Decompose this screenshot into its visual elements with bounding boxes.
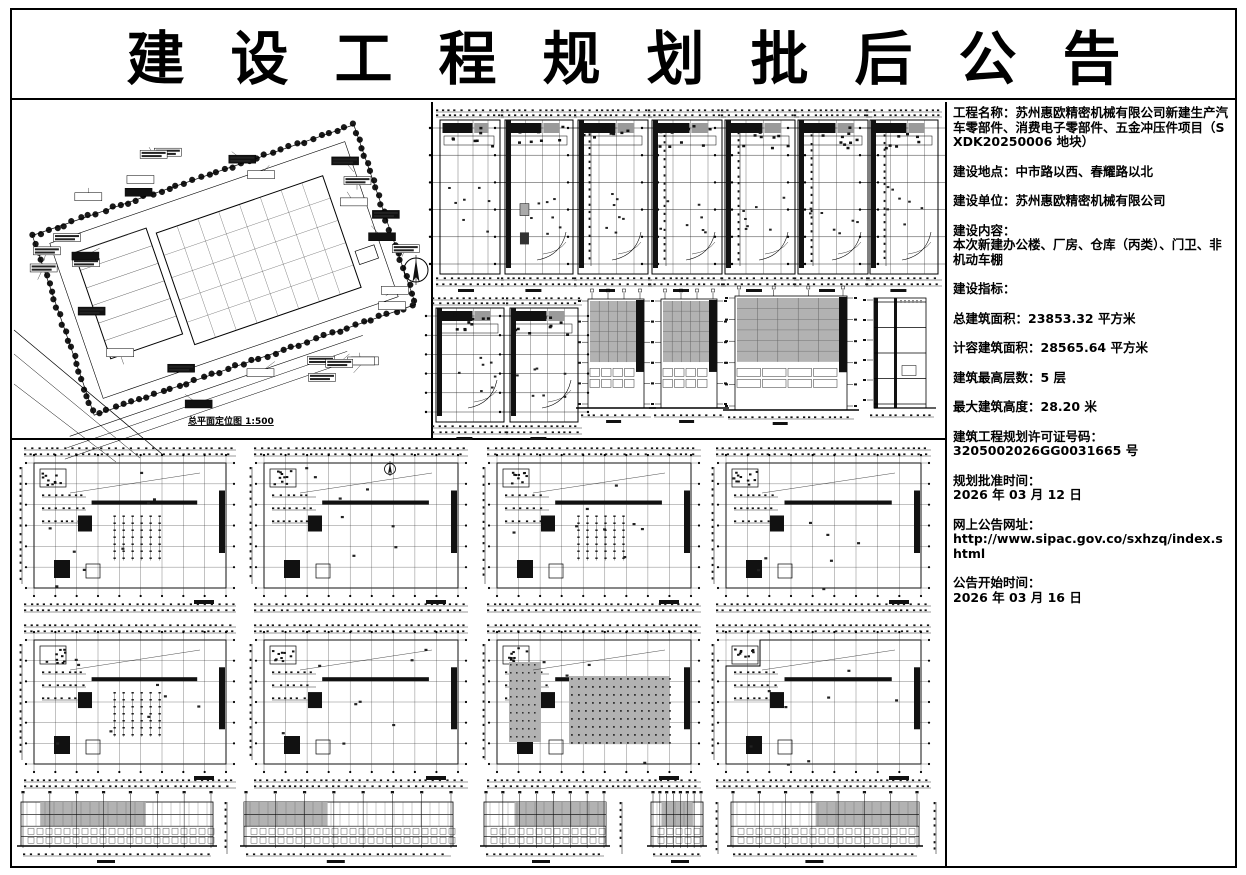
wide-elevation <box>480 791 622 863</box>
title-band: 建设工程规划批后公告 <box>12 10 1235 100</box>
small-elevation <box>649 289 729 423</box>
info-line: 本次新建办公楼、厂房、仓库（丙类）、门卫、非机动车棚 <box>953 238 1230 267</box>
info-paragraph: 规划批准时间：2026 年 03 月 12 日 <box>953 474 1230 503</box>
drawings-area: 总平面定位图 1:500 <box>12 102 945 866</box>
info-line: 建设指标： <box>953 282 1230 297</box>
info-paragraph: 最大建筑高度：28.20 米 <box>953 400 1230 415</box>
section-drawing <box>863 298 936 417</box>
info-line: 3205002026GG0031665 号 <box>953 444 1230 459</box>
narrow-plan <box>429 109 511 292</box>
narrow-plan <box>425 297 515 440</box>
wide-elevation <box>727 791 936 863</box>
small-elevation <box>723 286 859 425</box>
small-elevation <box>576 289 656 423</box>
narrow-plan <box>567 109 666 292</box>
info-line: 最大建筑高度：28.20 米 <box>953 400 1230 415</box>
info-paragraph: 建设单位：苏州惠欧精密机械有限公司 <box>953 194 1230 209</box>
big-plan <box>250 447 468 612</box>
info-paragraph: 总建筑面积：23853.32 平方米 <box>953 312 1230 327</box>
info-paragraph: 网上公告网址：http://www.sipac.gov.co/sxhzq/ind… <box>953 518 1230 562</box>
big-plan <box>20 447 236 612</box>
info-line: 建筑工程规划许可证号码： <box>953 430 1230 445</box>
info-line: 2026 年 03 月 12 日 <box>953 488 1230 503</box>
info-paragraph: 建设指标： <box>953 282 1230 297</box>
big-plan <box>712 624 931 788</box>
wide-elevation <box>225 791 457 863</box>
site-plan: 总平面定位图 1:500 <box>12 119 430 462</box>
info-line: 建设单位：苏州惠欧精密机械有限公司 <box>953 194 1230 209</box>
narrow-plan <box>494 109 591 292</box>
info-paragraph: 建筑最高层数：5 层 <box>953 371 1230 386</box>
big-plan <box>712 447 931 612</box>
info-line: 公告开始时间： <box>953 576 1230 591</box>
wide-elevation <box>647 791 718 863</box>
big-plan <box>483 447 701 612</box>
info-paragraph: 建设地点：中市路以西、春耀路以北 <box>953 165 1230 180</box>
big-plan <box>483 624 701 788</box>
info-line: 2026 年 03 月 16 日 <box>953 591 1230 606</box>
site-plan-caption: 总平面定位图 1:500 <box>188 415 274 427</box>
narrow-plan <box>859 109 945 292</box>
info-paragraph: 工程名称：苏州惠欧精密机械有限公司新建生产汽车零部件、消费电子零部件、五金冲压件… <box>953 106 1230 150</box>
info-line: 总建筑面积：23853.32 平方米 <box>953 312 1230 327</box>
drawings-canvas: 总平面定位图 1:500 <box>12 102 945 866</box>
narrow-plan <box>499 297 589 440</box>
info-line: 规划批准时间： <box>953 474 1230 489</box>
announcement-poster: 建设工程规划批后公告 总平面定位图 1:500 工程名称：苏州惠欧精密机械有限公… <box>0 0 1246 875</box>
info-line: 建设地点：中市路以西、春耀路以北 <box>953 165 1230 180</box>
info-paragraph: 计容建筑面积：28565.64 平方米 <box>953 341 1230 356</box>
info-line: 工程名称：苏州惠欧精密机械有限公司新建生产汽车零部件、消费电子零部件、五金冲压件… <box>953 106 1230 150</box>
info-line: 建设内容： <box>953 224 1230 239</box>
info-paragraph: 建筑工程规划许可证号码：3205002026GG0031665 号 <box>953 430 1230 459</box>
page-frame: 建设工程规划批后公告 总平面定位图 1:500 工程名称：苏州惠欧精密机械有限公… <box>10 8 1237 868</box>
page-title: 建设工程规划批后公告 <box>80 12 1166 96</box>
big-plan <box>20 624 236 788</box>
wide-elevation <box>17 791 217 863</box>
big-plan <box>250 624 468 788</box>
info-line: http://www.sipac.gov.co/sxhzq/index.shtm… <box>953 532 1230 561</box>
info-paragraph: 公告开始时间：2026 年 03 月 16 日 <box>953 576 1230 605</box>
info-paragraph: 建设内容：本次新建办公楼、厂房、仓库（丙类）、门卫、非机动车棚 <box>953 224 1230 268</box>
info-line: 网上公告网址： <box>953 518 1230 533</box>
info-panel: 工程名称：苏州惠欧精密机械有限公司新建生产汽车零部件、消费电子零部件、五金冲压件… <box>945 102 1235 866</box>
info-line: 计容建筑面积：28565.64 平方米 <box>953 341 1230 356</box>
info-line: 建筑最高层数：5 层 <box>953 371 1230 386</box>
